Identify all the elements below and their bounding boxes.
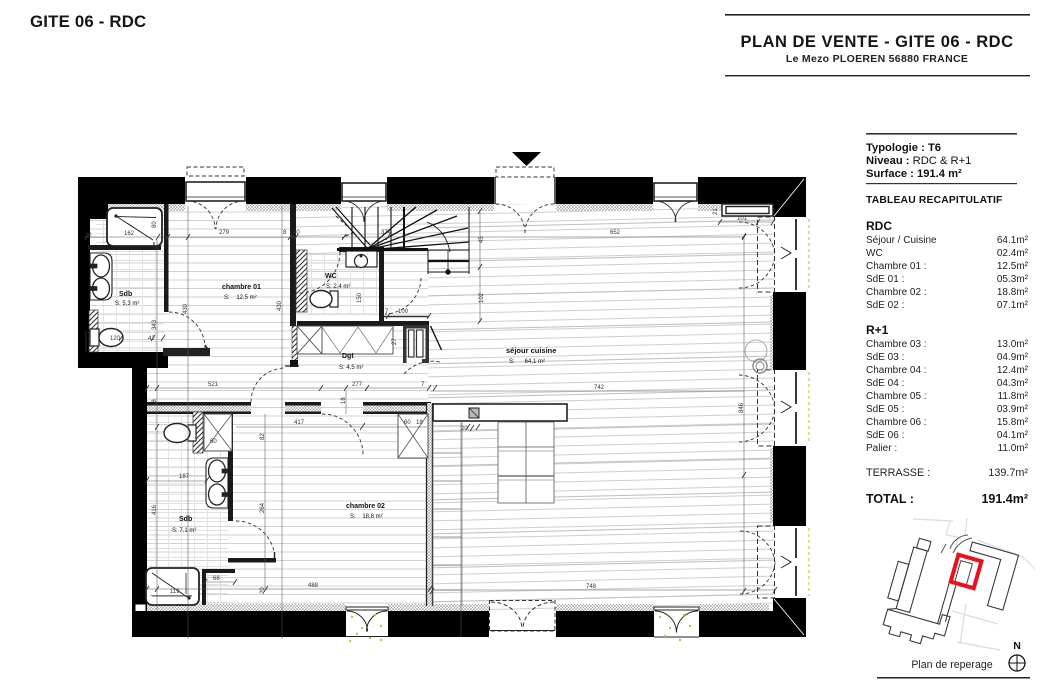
svg-text:GITE 06 - RDC: GITE 06 - RDC xyxy=(30,12,146,31)
svg-text:60: 60 xyxy=(404,420,411,426)
svg-text:18: 18 xyxy=(341,397,347,404)
svg-text:100: 100 xyxy=(398,309,409,315)
svg-text:162: 162 xyxy=(124,231,135,237)
svg-text:343: 343 xyxy=(152,319,158,330)
svg-text:07.1m²: 07.1m² xyxy=(997,300,1029,311)
svg-text:SdE 02 :: SdE 02 : xyxy=(866,300,904,311)
svg-text:20: 20 xyxy=(461,426,468,432)
svg-text:SdE 01 :: SdE 01 : xyxy=(866,274,904,285)
svg-text:279: 279 xyxy=(219,230,230,236)
svg-text:Chambre 01 :: Chambre 01 : xyxy=(866,261,927,272)
svg-text:139.7m²: 139.7m² xyxy=(988,467,1028,479)
svg-text:120: 120 xyxy=(110,336,121,342)
svg-text:374: 374 xyxy=(381,230,392,236)
svg-text:21: 21 xyxy=(713,208,719,215)
svg-text:Séjour / Cuisine: Séjour / Cuisine xyxy=(866,235,937,246)
svg-text:S: 2,4 m²: S: 2,4 m² xyxy=(326,284,350,290)
svg-text:80: 80 xyxy=(152,221,158,228)
svg-text:846: 846 xyxy=(739,402,745,413)
svg-text:Niveau : RDC & R+1: Niveau : RDC & R+1 xyxy=(866,155,971,167)
svg-text:S: 18,8 m²: S: 18,8 m² xyxy=(350,514,383,520)
svg-text:68: 68 xyxy=(213,576,220,582)
svg-text:Chambre 05 :: Chambre 05 : xyxy=(866,391,927,402)
svg-text:119: 119 xyxy=(170,589,180,595)
svg-text:Sdb: Sdb xyxy=(179,516,192,523)
svg-text:TERRASSE :: TERRASSE : xyxy=(866,467,930,479)
svg-text:R+1: R+1 xyxy=(866,323,889,337)
svg-text:488: 488 xyxy=(308,583,319,589)
svg-text:Surface : 191.4 m²: Surface : 191.4 m² xyxy=(866,168,962,180)
svg-text:Chambre 06 :: Chambre 06 : xyxy=(866,417,927,428)
svg-text:12.4m²: 12.4m² xyxy=(997,365,1029,376)
svg-text:S: 4,5 m²: S: 4,5 m² xyxy=(339,365,363,371)
svg-text:S: 7,1 m²: S: 7,1 m² xyxy=(172,528,196,534)
svg-text:11.0m²: 11.0m² xyxy=(998,443,1029,454)
svg-text:417: 417 xyxy=(294,420,305,426)
svg-text:187: 187 xyxy=(179,474,190,480)
svg-text:PLAN DE VENTE - GITE 06 - RDC: PLAN DE VENTE - GITE 06 - RDC xyxy=(740,33,1013,51)
svg-text:18: 18 xyxy=(152,399,158,406)
svg-text:05.3m²: 05.3m² xyxy=(997,274,1029,285)
svg-text:430: 430 xyxy=(277,300,283,311)
svg-text:RDC: RDC xyxy=(866,219,892,233)
svg-text:04.9m²: 04.9m² xyxy=(997,352,1029,363)
svg-text:SdE 04 :: SdE 04 : xyxy=(866,378,904,389)
svg-text:chambre 02: chambre 02 xyxy=(346,503,385,510)
svg-text:416: 416 xyxy=(152,504,158,515)
svg-text:S: 64,1 m²: S: 64,1 m² xyxy=(509,359,545,365)
svg-text:11.8m²: 11.8m² xyxy=(998,391,1029,402)
svg-text:chambre 01: chambre 01 xyxy=(222,284,261,291)
svg-text:13.0m²: 13.0m² xyxy=(997,339,1029,350)
svg-text:Typologie : T6: Typologie : T6 xyxy=(866,142,941,154)
svg-text:03.9m²: 03.9m² xyxy=(997,404,1029,415)
svg-text:742: 742 xyxy=(594,385,605,391)
svg-text:45: 45 xyxy=(479,236,485,243)
svg-text:652: 652 xyxy=(610,230,621,236)
svg-text:18.8m²: 18.8m² xyxy=(997,287,1029,298)
svg-text:Sdb: Sdb xyxy=(119,291,132,298)
svg-text:Plan de reperage: Plan de reperage xyxy=(911,659,992,671)
svg-text:SdE 05 :: SdE 05 : xyxy=(866,404,904,415)
svg-text:102: 102 xyxy=(479,292,485,303)
svg-text:Le Mezo PLOEREN 56880 FRANCE: Le Mezo PLOEREN 56880 FRANCE xyxy=(786,53,968,65)
svg-text:Chambre 04 :: Chambre 04 : xyxy=(866,365,927,376)
svg-text:18: 18 xyxy=(416,420,423,426)
svg-text:S: 5,3 m²: S: 5,3 m² xyxy=(115,301,139,307)
svg-text:64.1m²: 64.1m² xyxy=(997,235,1029,246)
svg-text:SdE 06 :: SdE 06 : xyxy=(866,430,904,441)
svg-text:02.4m²: 02.4m² xyxy=(997,248,1029,259)
svg-text:04.3m²: 04.3m² xyxy=(997,378,1029,389)
svg-text:séjour cuisine: séjour cuisine xyxy=(506,346,556,355)
svg-text:15.8m²: 15.8m² xyxy=(997,417,1029,428)
svg-text:27: 27 xyxy=(392,338,398,345)
svg-text:04.1m²: 04.1m² xyxy=(997,430,1029,441)
svg-text:101: 101 xyxy=(737,216,748,222)
svg-text:SdE 03 :: SdE 03 : xyxy=(866,352,904,363)
svg-text:S: 12,5 m²: S: 12,5 m² xyxy=(224,295,257,301)
svg-text:WC: WC xyxy=(325,273,337,280)
svg-text:WC: WC xyxy=(866,248,883,259)
svg-text:191.4m²: 191.4m² xyxy=(981,492,1028,506)
svg-text:150: 150 xyxy=(357,292,363,303)
svg-text:40: 40 xyxy=(293,230,300,236)
svg-text:521: 521 xyxy=(208,382,219,388)
svg-text:Palier :: Palier : xyxy=(866,443,897,454)
svg-text:82: 82 xyxy=(260,433,266,440)
svg-text:N: N xyxy=(1013,640,1021,652)
svg-text:TABLEAU RECAPITULATIF: TABLEAU RECAPITULATIF xyxy=(866,195,1003,206)
svg-text:748: 748 xyxy=(586,584,597,590)
svg-text:264: 264 xyxy=(260,502,266,513)
svg-text:277: 277 xyxy=(352,382,363,388)
svg-text:Dgt: Dgt xyxy=(342,353,354,360)
svg-text:Chambre 03 :: Chambre 03 : xyxy=(866,339,927,350)
svg-text:TOTAL :: TOTAL : xyxy=(866,492,914,506)
svg-text:12.5m²: 12.5m² xyxy=(997,261,1029,272)
svg-text:430: 430 xyxy=(183,303,189,314)
svg-text:60: 60 xyxy=(210,439,217,445)
svg-text:Chambre 02 :: Chambre 02 : xyxy=(866,287,927,298)
